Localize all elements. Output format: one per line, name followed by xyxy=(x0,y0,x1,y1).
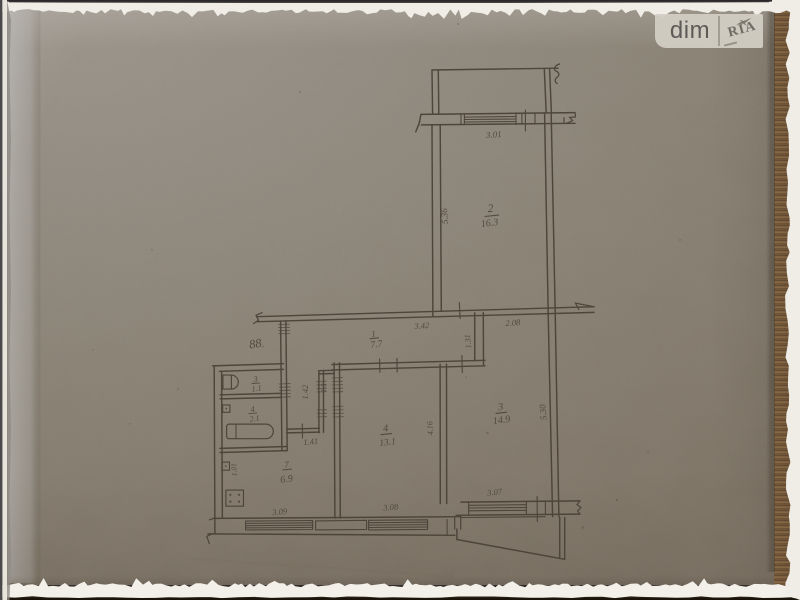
svg-text:1.42: 1.42 xyxy=(300,384,310,400)
svg-text:5.30: 5.30 xyxy=(537,403,548,420)
svg-text:1.31: 1.31 xyxy=(463,334,473,349)
svg-text:3.07: 3.07 xyxy=(486,486,504,498)
svg-text:2.1: 2.1 xyxy=(249,413,260,423)
svg-text:1.01: 1.01 xyxy=(229,463,239,477)
svg-text:16.3: 16.3 xyxy=(480,217,499,230)
svg-text:3.08: 3.08 xyxy=(382,501,399,512)
svg-text:3.42: 3.42 xyxy=(413,320,430,331)
svg-text:1.5: 1.5 xyxy=(320,383,328,393)
svg-text:1.1: 1.1 xyxy=(251,383,262,393)
svg-text:4.16: 4.16 xyxy=(425,421,435,436)
svg-text:5.36: 5.36 xyxy=(439,208,450,225)
svg-text:3.01: 3.01 xyxy=(485,129,502,140)
svg-text:3.09: 3.09 xyxy=(271,506,288,517)
svg-text:2.08: 2.08 xyxy=(505,317,521,328)
svg-text:6.9: 6.9 xyxy=(280,473,294,485)
svg-text:1.41: 1.41 xyxy=(303,436,319,447)
svg-text:13.1: 13.1 xyxy=(379,437,397,449)
